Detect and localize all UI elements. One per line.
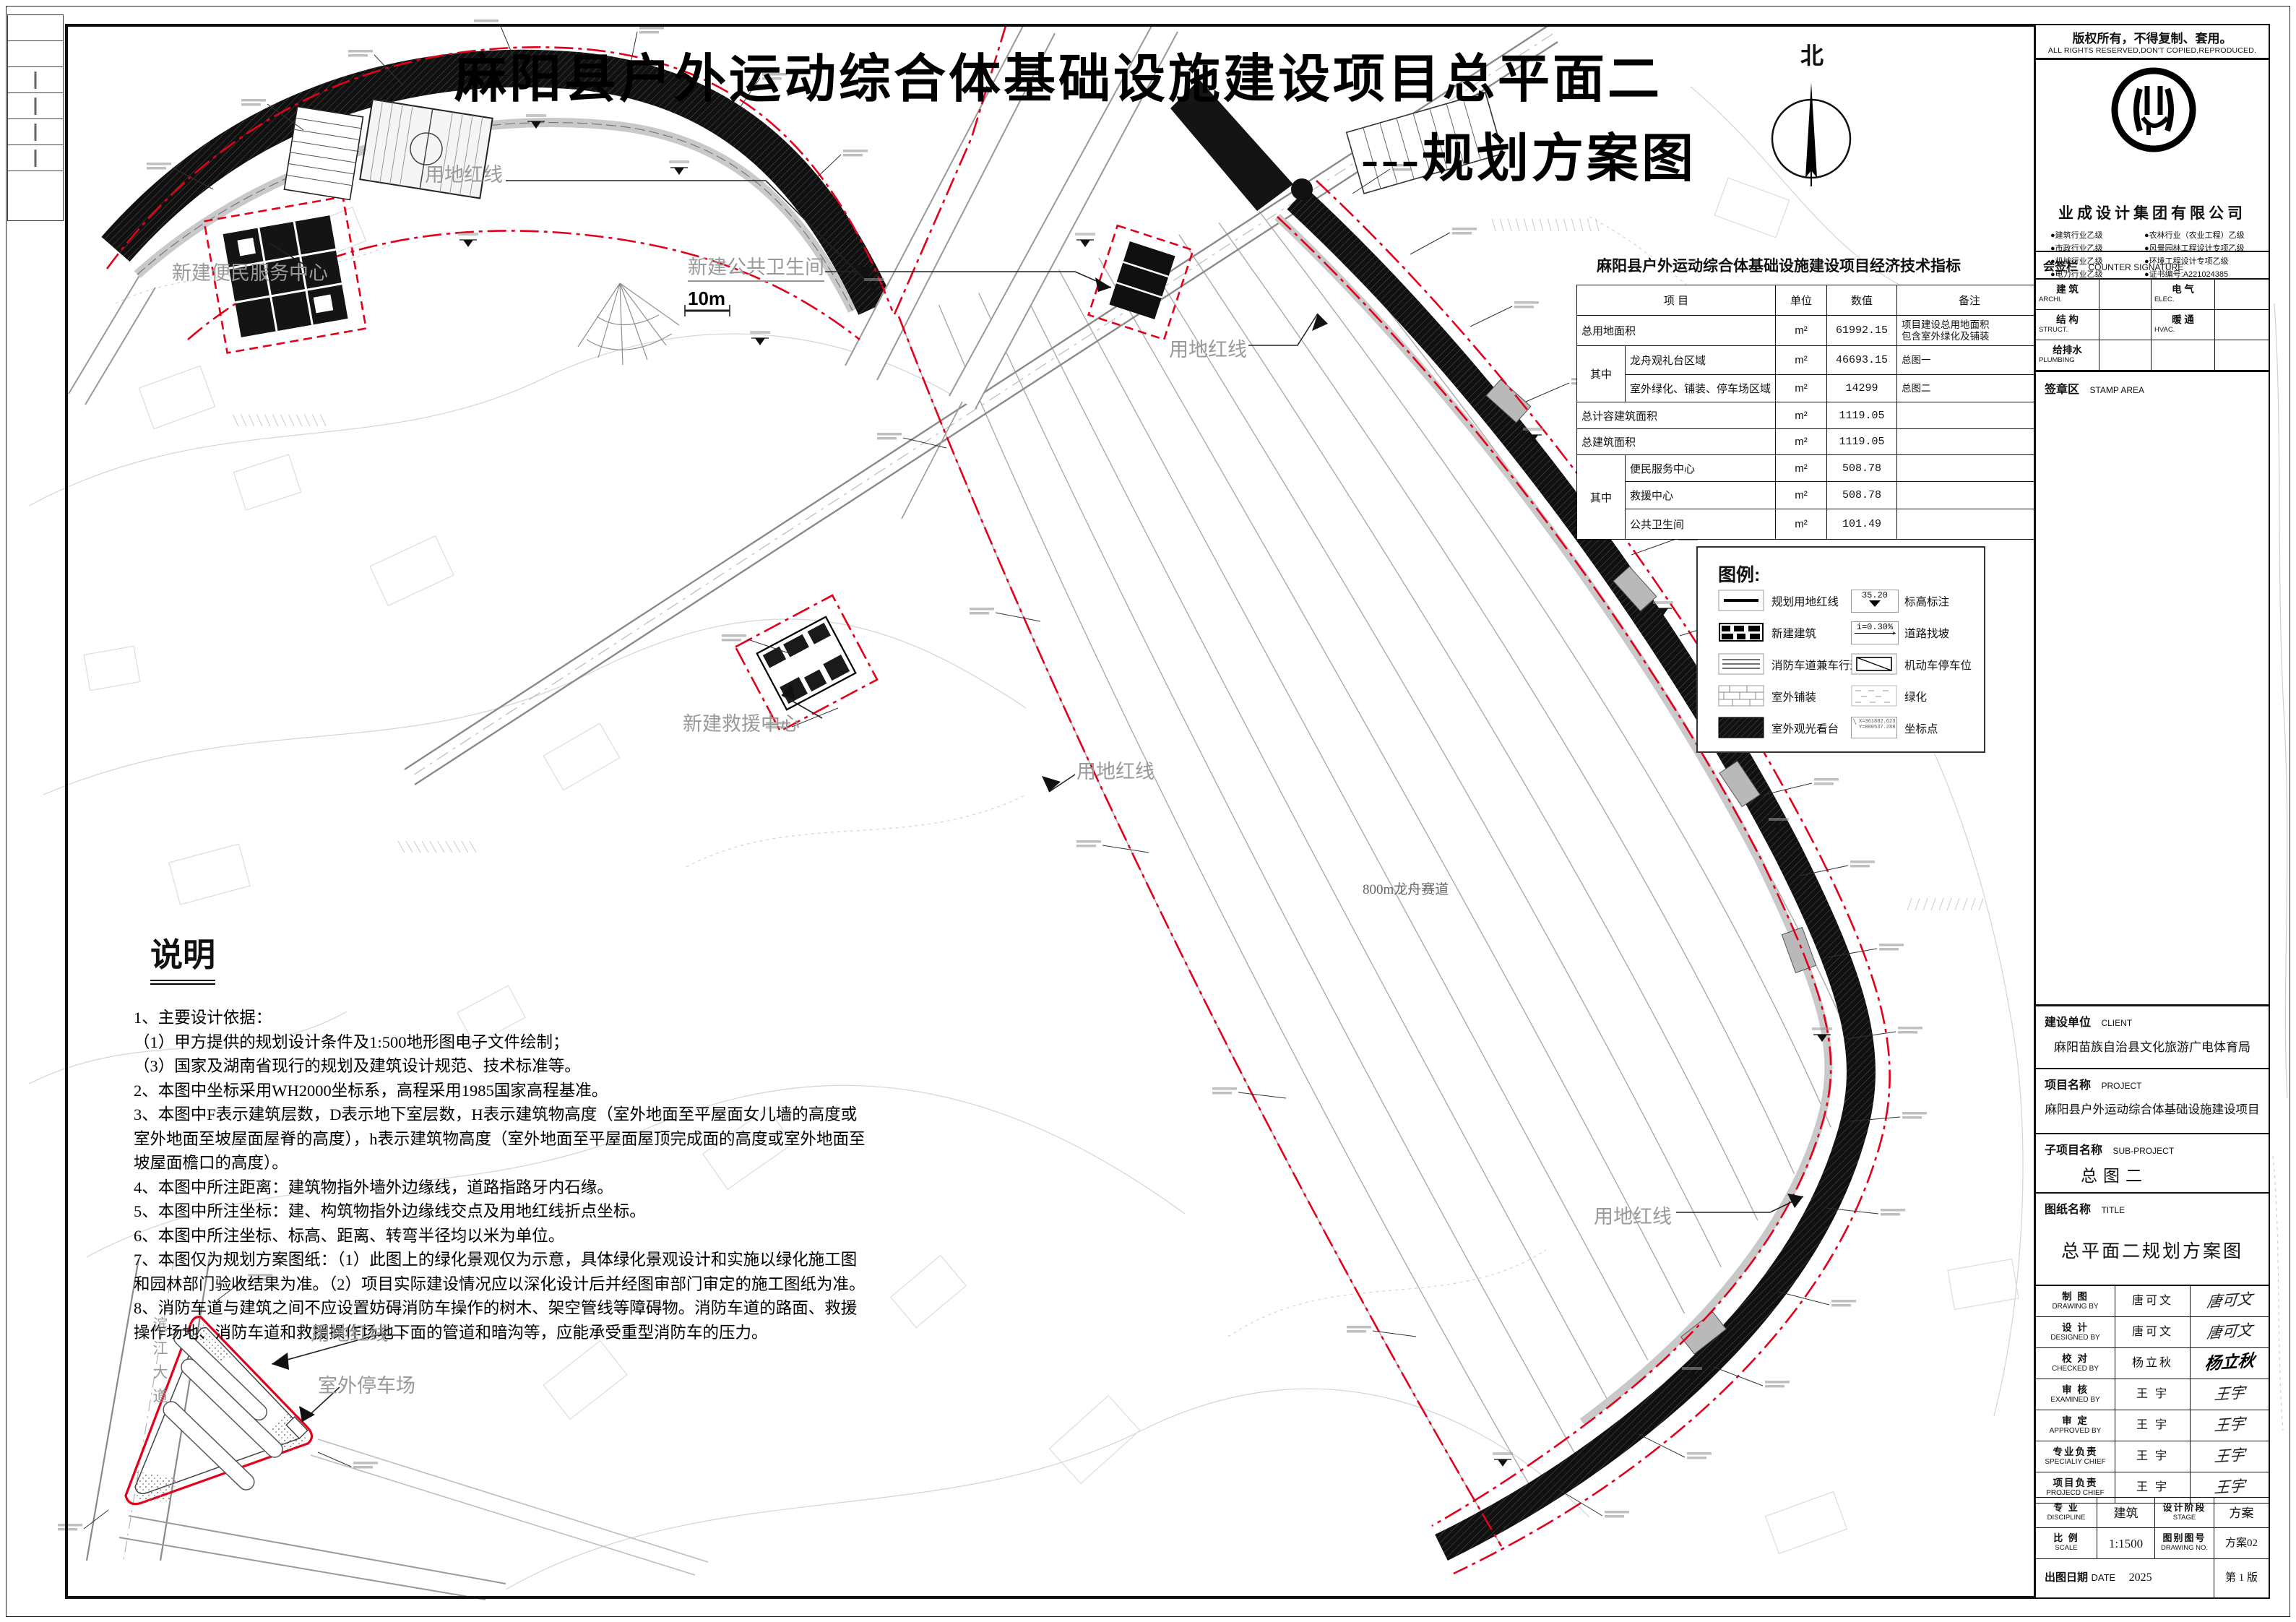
note-line: （1）甲方提供的规划设计条件及1:500地形图电子文件绘制；	[134, 1030, 867, 1055]
new-building-symbol	[1718, 621, 1764, 643]
client-value: 麻阳苗族自治县文化旅游广电体育局	[2036, 1037, 2269, 1055]
project-label-en: PROJECT	[2101, 1081, 2141, 1091]
subproject-label-zh: 子项目名称	[2045, 1144, 2102, 1157]
elevation-symbol: 35.20	[1851, 590, 1897, 611]
econ-note: 总图一	[1897, 346, 2042, 375]
scale-row: 比 例SCALE 1:1500 图别图号DRAWING NO. 方案02	[2036, 1528, 2269, 1559]
sheetname-label-en: TITLE	[2101, 1205, 2125, 1215]
stamp-area: 签章区 STAMP AREA	[2036, 374, 2269, 1004]
legend-label: 机动车停车位	[1904, 657, 1972, 673]
discipline-cell: 给排水PLUMBING	[2036, 340, 2099, 371]
sig-handwriting: 唐可文	[2189, 1314, 2270, 1350]
econ-note	[1897, 402, 2042, 429]
strip-cell	[8, 171, 63, 197]
plan-label: 用地红线	[425, 159, 503, 187]
client-label-zh: 建设单位	[2045, 1017, 2091, 1029]
blank-cell	[2152, 340, 2215, 371]
econ-header: 备注	[1897, 285, 2042, 316]
blank-cell	[2099, 310, 2152, 340]
econ-unit: m²	[1776, 482, 1827, 509]
fire-lane-symbol	[1718, 653, 1764, 675]
plan-label: 新建便民服务中心	[172, 257, 328, 285]
date-label-zh: 出图日期	[2045, 1571, 2088, 1584]
econ-val: 61992.15	[1827, 316, 1897, 346]
strip-cell	[8, 15, 63, 41]
sig-name: 唐可文	[2115, 1286, 2191, 1316]
north-label: 北	[1783, 38, 1841, 71]
econ-header: 数值	[1827, 285, 1897, 316]
legend-label: 标高标注	[1904, 593, 1949, 609]
company-logo	[2111, 67, 2196, 152]
signature-row: 审 定APPROVED BY王 宇王宇	[2036, 1410, 2269, 1441]
greenery-symbol	[1851, 685, 1897, 707]
note-line: 1、主要设计依据：	[134, 1006, 867, 1030]
note-line: 4、本图中所注距离：建筑物指外墙外边缘线，道路指路牙内石缘。	[134, 1175, 867, 1200]
econ-val: 14299	[1827, 375, 1897, 402]
econ-item: 公共卫生间	[1626, 509, 1776, 540]
project-value: 麻阳县户外运动综合体基础设施建设项目	[2036, 1100, 2269, 1117]
subproject-label-en: SUB-PROJECT	[2112, 1146, 2174, 1156]
project-label-zh: 项目名称	[2045, 1079, 2091, 1092]
legend-label: 新建建筑	[1771, 625, 1816, 641]
econ-val: 508.78	[1827, 455, 1897, 482]
sheet-main-title: 麻阳县户外运动综合体基础设施建设项目总平面二	[412, 36, 1705, 112]
signature-row: 制 图DRAWING BY唐可文唐可文	[2036, 1286, 2269, 1317]
strip-cell	[8, 119, 63, 145]
client-section: 建设单位 CLIENT 麻阳苗族自治县文化旅游广电体育局	[2036, 1004, 2269, 1068]
discipline-cell: 暖 通HVAC.	[2152, 310, 2215, 340]
cert-item: ●建筑行业乙级	[2050, 229, 2103, 242]
discipline-cell: 结 构STRUCT.	[2036, 310, 2099, 340]
plan-label: 用地红线	[311, 1318, 389, 1346]
sig-role: 制 图DRAWING BY	[2036, 1286, 2115, 1316]
sig-role: 设 计DESIGNED BY	[2036, 1317, 2115, 1347]
sig-role: 校 对CHECKED BY	[2036, 1348, 2115, 1379]
copyright-box: 版权所有，不得复制、套用。 ALL RIGHTS RESERVED,DON'T …	[2036, 25, 2269, 60]
econ-unit: m²	[1776, 429, 1827, 455]
counter-signature-zh: 会签栏	[2043, 261, 2078, 273]
econ-item: 室外绿化、铺装、停车场区域	[1626, 375, 1776, 402]
sheetname-value: 总平面二规划方案图	[2036, 1237, 2269, 1263]
note-line: 5、本图中所注坐标：建、构筑物指外边缘线交点及用地红线折点坐标。	[134, 1199, 867, 1224]
plan-label: 用地红线	[1076, 756, 1155, 784]
econ-note: 项目建设总用地面积 包含室外绿化及铺装	[1897, 316, 2042, 346]
notes-text: 1、主要设计依据：（1）甲方提供的规划设计条件及1:500地形图电子文件绘制；（…	[134, 1006, 867, 1345]
sig-handwriting: 唐可文	[2189, 1283, 2270, 1319]
econ-group: 其中	[1577, 346, 1626, 402]
counter-signature-en: COUNTER SIGNATURE	[2088, 262, 2183, 272]
plan-label: 滨江大道	[149, 1316, 171, 1412]
econ-val: 1119.05	[1827, 429, 1897, 455]
legend-label: 室外铺装	[1771, 689, 1816, 704]
econ-header: 单位	[1776, 285, 1827, 316]
drawing-number-value: 方案02	[2214, 1528, 2269, 1558]
signature-row: 设 计DESIGNED BY唐可文唐可文	[2036, 1317, 2269, 1348]
note-line: （3）国家及湖南省现行的规划及建筑设计规范、技术标准等。	[134, 1054, 867, 1079]
date-value: 2025	[2129, 1571, 2152, 1584]
legend-label: 坐标点	[1904, 720, 1938, 736]
north-compass	[1772, 82, 1850, 186]
subproject-value: 总图二	[2036, 1162, 2269, 1186]
econ-group: 其中	[1577, 455, 1626, 540]
econ-item: 救援中心	[1626, 482, 1776, 509]
copyright-zh: 版权所有，不得复制、套用。	[2036, 28, 2269, 46]
economic-indicator-table: 项 目单位数值备注总用地面积m²61992.15项目建设总用地面积 包含室外绿化…	[1576, 285, 2042, 540]
legend-label: 绿化	[1904, 689, 1927, 704]
econ-unit: m²	[1776, 316, 1827, 346]
coordinate-symbol: ╲X=361882.623Y=800537.288	[1851, 717, 1897, 738]
plan-label: 室外停车场	[318, 1370, 415, 1398]
sig-role: 审 定APPROVED BY	[2036, 1410, 2115, 1441]
copyright-en: ALL RIGHTS RESERVED,DON'T COPIED,REPRODU…	[2036, 46, 2269, 55]
econ-val: 508.78	[1827, 482, 1897, 509]
note-line: 6、本图中所注坐标、标高、距离、转弯半径均以米为单位。	[134, 1224, 867, 1248]
econ-item: 便民服务中心	[1626, 455, 1776, 482]
sheet-sub-title: ---规划方案图	[1084, 116, 1696, 191]
stamp-area-zh: 签章区	[2045, 384, 2079, 396]
redline-symbol	[1718, 590, 1764, 611]
econ-val: 1119.05	[1827, 402, 1897, 429]
paving-symbol	[1718, 685, 1764, 707]
econ-item: 总建筑面积	[1577, 429, 1776, 455]
sig-name: 杨立秋	[2115, 1348, 2191, 1379]
econ-note	[1897, 429, 2042, 455]
parking-space-symbol	[1851, 653, 1897, 675]
plan-label: 新建公共卫生间	[688, 251, 824, 282]
blank-cell	[2215, 310, 2269, 340]
blank-cell	[2099, 340, 2152, 371]
discipline-cell: 电 气ELEC.	[2152, 280, 2215, 310]
legend-box: 图例: 规划用地红线新建建筑消防车道兼车行道路室外铺装室外观光看台35.20标高…	[1696, 546, 1985, 753]
cert-item: ●农林行业（农业工程）乙级	[2144, 229, 2245, 242]
discipline-cell: 建 筑ARCHI.	[2036, 280, 2099, 310]
plan-label: 用地红线	[1594, 1201, 1672, 1229]
strip-cell	[8, 93, 63, 119]
scale-value: 1:1500	[2097, 1528, 2155, 1558]
note-line: 2、本图中坐标采用WH2000坐标系，高程采用1985国家高程基准。	[134, 1079, 867, 1103]
discipline-row: 专 业DISCIPLINE 建筑 设计阶段STAGE 方案	[2036, 1497, 2269, 1528]
sig-handwriting: 王宇	[2189, 1376, 2270, 1412]
econ-header: 项 目	[1577, 285, 1776, 316]
sig-name: 王 宇	[2115, 1441, 2191, 1472]
plan-label: 800m龙舟赛道	[1363, 879, 1449, 898]
strip-cell	[8, 41, 63, 67]
econ-table-title: 麻阳县户外运动综合体基础设施建设项目经济技术指标	[1553, 254, 2004, 276]
plan-label: 用地红线	[1169, 334, 1247, 362]
legend-label: 道路找坡	[1904, 625, 1949, 641]
econ-unit: m²	[1776, 402, 1827, 429]
sig-handwriting: 杨立秋	[2189, 1345, 2270, 1381]
econ-unit: m²	[1776, 346, 1827, 375]
project-section: 项目名称 PROJECT 麻阳县户外运动综合体基础设施建设项目	[2036, 1068, 2269, 1133]
company-name: 业成设计集团有限公司	[2036, 202, 2269, 223]
note-line: 8、消防车道与建筑之间不应设置妨碍消防车操作的树木、架空管线等障碍物。消防车道的…	[134, 1296, 867, 1345]
counter-signature-grid: 建 筑ARCHI.电 气ELEC.结 构STRUCT.暖 通HVAC.给排水PL…	[2036, 280, 2269, 372]
strip-cell	[8, 145, 63, 171]
edition-value: 第 1 版	[2214, 1559, 2269, 1597]
date-row: 出图日期 DATE 2025 第 1 版	[2036, 1559, 2269, 1597]
signature-row: 专业负责SPECIALIY CHIEF王 宇王宇	[2036, 1441, 2269, 1472]
sig-name: 王 宇	[2115, 1410, 2191, 1441]
econ-unit: m²	[1776, 375, 1827, 402]
legend-title: 图例:	[1718, 561, 1760, 587]
sig-role: 专业负责SPECIALIY CHIEF	[2036, 1441, 2115, 1472]
blank-cell	[2099, 280, 2152, 310]
econ-unit: m²	[1776, 509, 1827, 540]
econ-item: 总计容建筑面积	[1577, 402, 1776, 429]
viewing-platform-symbol	[1718, 717, 1764, 738]
drawing-sheet: 麻阳县户外运动综合体基础设施建设项目总平面二 ---规划方案图 北 麻阳县户外运…	[0, 0, 2296, 1622]
note-line: 7、本图仅为规划方案图纸：（1）此图上的绿化景观仅为示意，具体绿化景观设计和实施…	[134, 1248, 867, 1296]
title-block-panel: 版权所有，不得复制、套用。 ALL RIGHTS RESERVED,DON'T …	[2034, 25, 2269, 1597]
blank-cell	[2215, 280, 2269, 310]
econ-note	[1897, 509, 2042, 540]
notes-title: 说明	[150, 928, 215, 985]
legend-label: 规划用地红线	[1771, 593, 1839, 609]
slope-symbol: i=0.30%➤	[1851, 621, 1897, 643]
econ-note	[1897, 482, 2042, 509]
plan-label: 10m	[688, 288, 725, 310]
stage-value: 方案	[2214, 1498, 2269, 1527]
sheetname-section: 图纸名称 TITLE 总平面二规划方案图	[2036, 1192, 2269, 1285]
discipline-value: 建筑	[2097, 1498, 2155, 1527]
sig-name: 王 宇	[2115, 1379, 2191, 1410]
sig-role: 审 核EXAMINED BY	[2036, 1379, 2115, 1410]
econ-val: 46693.15	[1827, 346, 1897, 375]
sheetname-label-zh: 图纸名称	[2045, 1204, 2091, 1216]
sig-handwriting: 王宇	[2189, 1438, 2270, 1475]
blank-cell	[2215, 340, 2269, 371]
binding-strip-table	[7, 14, 64, 221]
signature-rows: 制 图DRAWING BY唐可文唐可文设 计DESIGNED BY唐可文唐可文校…	[2036, 1285, 2269, 1504]
econ-val: 101.49	[1827, 509, 1897, 540]
econ-note	[1897, 455, 2042, 482]
econ-unit: m²	[1776, 455, 1827, 482]
econ-item: 总用地面积	[1577, 316, 1776, 346]
sig-name: 唐可文	[2115, 1317, 2191, 1347]
client-label-en: CLIENT	[2101, 1018, 2132, 1028]
strip-cell	[8, 67, 63, 93]
sig-handwriting: 王宇	[2189, 1407, 2270, 1444]
counter-signature-header: 会签栏 COUNTER SIGNATURE	[2036, 251, 2269, 280]
date-label-en: DATE	[2091, 1572, 2115, 1583]
signature-row: 审 核EXAMINED BY王 宇王宇	[2036, 1379, 2269, 1410]
company-section: 业成设计集团有限公司 ●建筑行业乙级●市政行业乙级●机械行业乙级●电力行业乙级 …	[2036, 60, 2269, 251]
legend-label: 室外观光看台	[1771, 720, 1839, 736]
stamp-area-en: STAMP AREA	[2089, 385, 2144, 395]
plan-label: 新建救援中心	[683, 708, 800, 736]
note-line: 3、本图中F表示建筑层数，D表示地下室层数，H表示建筑物高度（室外地面至平屋面女…	[134, 1103, 867, 1175]
econ-note: 总图二	[1897, 375, 2042, 402]
signature-row: 校 对CHECKED BY杨立秋杨立秋	[2036, 1348, 2269, 1379]
subproject-section: 子项目名称 SUB-PROJECT 总图二	[2036, 1133, 2269, 1192]
econ-item: 龙舟观礼台区域	[1626, 346, 1776, 375]
